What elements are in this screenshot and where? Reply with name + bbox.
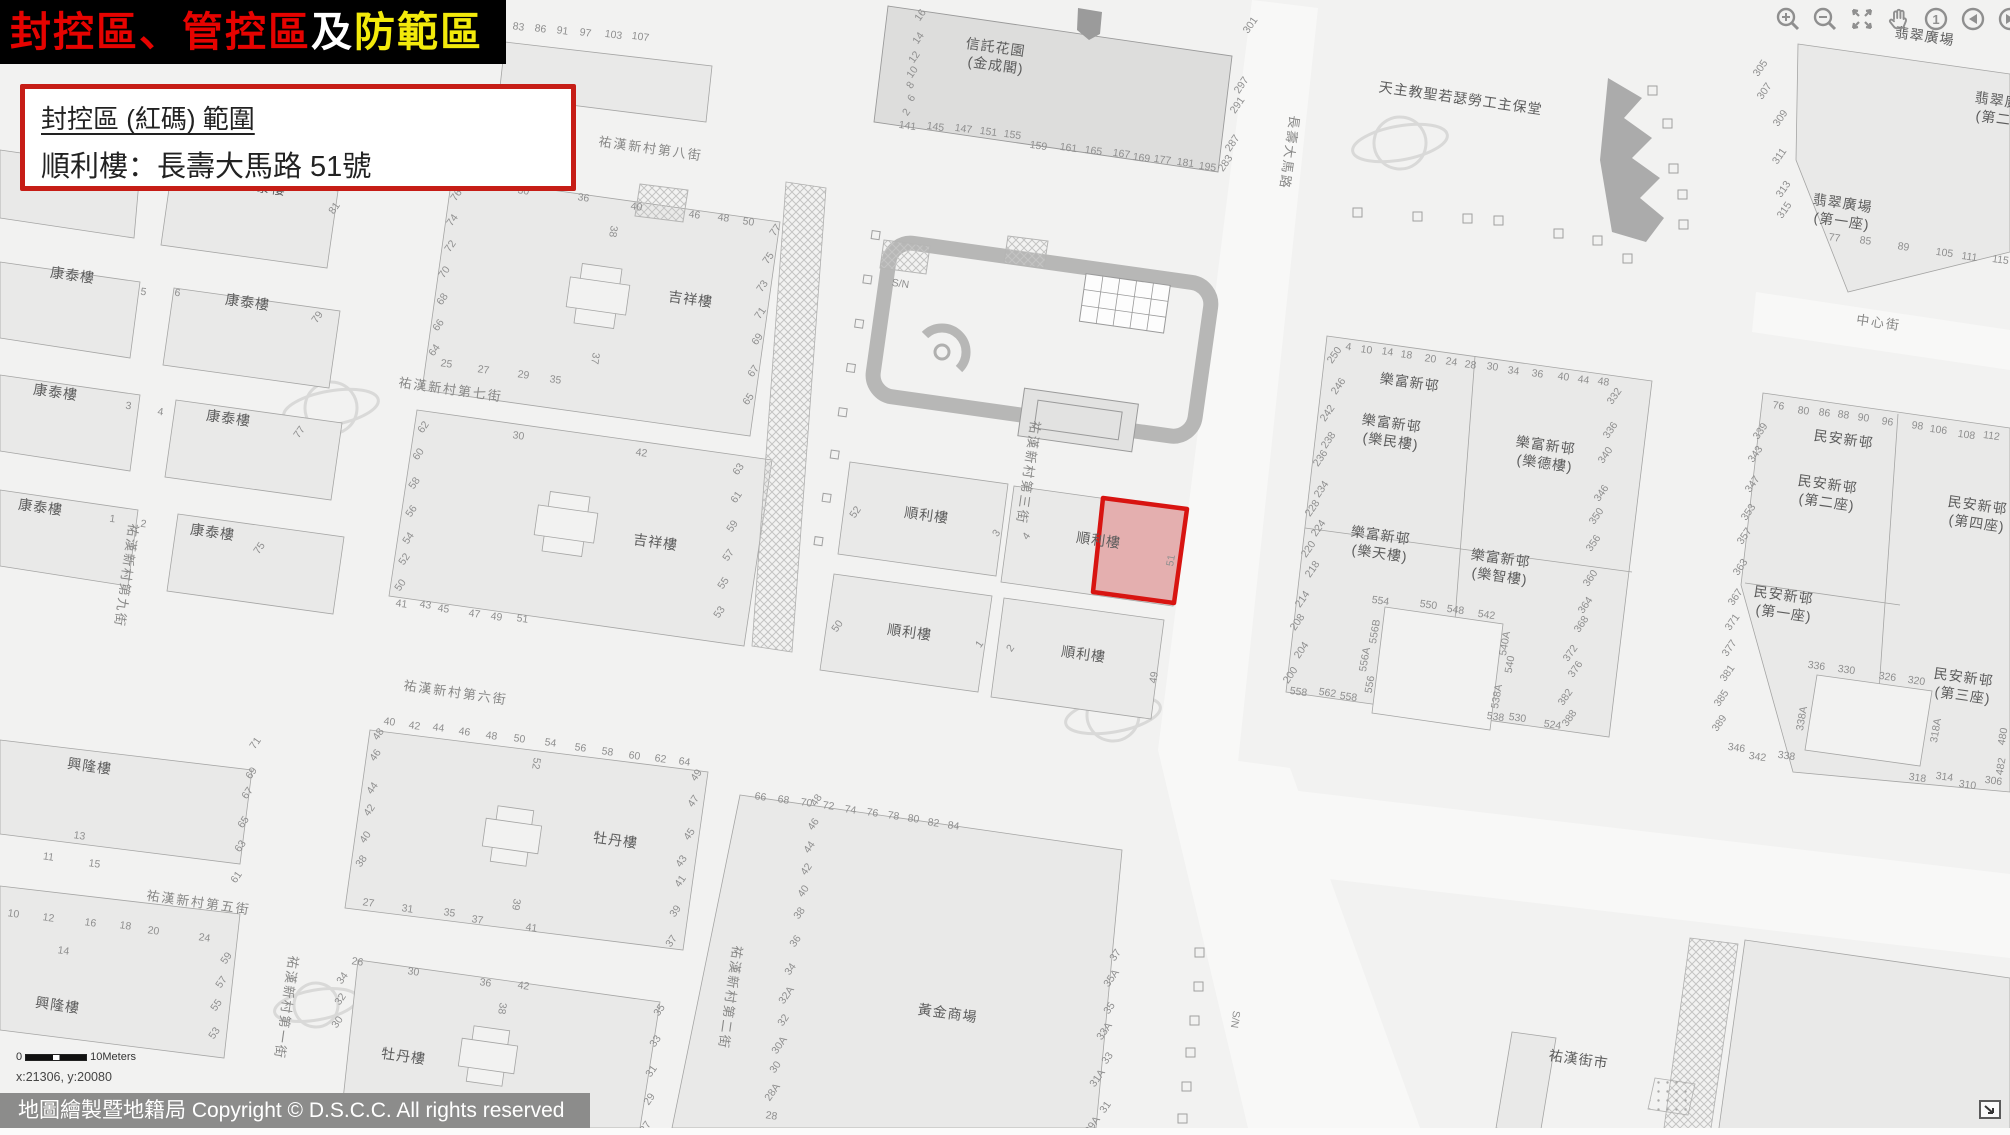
lot-number: 12 — [42, 911, 55, 925]
copyright-bar: 地圖繪製暨地籍局 Copyright © D.S.C.C. All rights… — [0, 1093, 590, 1128]
lot-number: 48 — [717, 211, 730, 225]
lot-number: 40 — [383, 715, 396, 729]
lot-number: 86 — [1818, 406, 1831, 420]
lot-number: 542 — [1477, 608, 1496, 622]
lot-number: 11 — [42, 850, 55, 863]
previous-view-button[interactable] — [1959, 5, 1987, 33]
lot-number: 49 — [490, 610, 503, 624]
title-segment-white: 及 — [311, 12, 354, 53]
lot-number: 161 — [1059, 141, 1078, 155]
lot-number: 310 — [1958, 778, 1977, 792]
lot-number: 338 — [1777, 749, 1796, 763]
lockdown-info-box: 封控區 (紅碼) 範圍 順利樓：長壽大馬路 51號 — [20, 84, 576, 191]
lot-number: 155 — [1003, 128, 1022, 142]
lockdown-scope-heading: 封控區 (紅碼) 範圍 — [41, 99, 555, 136]
lot-number: 43 — [419, 598, 432, 612]
lot-number: 15 — [88, 857, 101, 871]
lot-number: 58 — [601, 745, 614, 759]
lot-number: 42 — [408, 719, 421, 733]
lot-number: 558 — [1339, 690, 1358, 704]
scale-bar: 0 10Meters — [16, 1051, 136, 1063]
lot-number: 46 — [458, 725, 471, 739]
lot-number: 13 — [73, 829, 86, 843]
lot-number: 20 — [1424, 352, 1437, 366]
lot-number: 44 — [1577, 373, 1590, 387]
lot-number: 78 — [887, 809, 900, 823]
initial-view-button[interactable]: 1 — [1922, 5, 1950, 33]
lot-number: 167 — [1112, 147, 1131, 161]
lot-number: 35 — [549, 373, 562, 387]
lot-number: 48 — [485, 729, 498, 743]
next-view-icon — [1996, 5, 2010, 33]
lot-number: 91 — [556, 24, 569, 38]
lot-number: 90 — [1857, 411, 1870, 425]
zoom-in-icon — [1774, 5, 1802, 33]
zoom-in-button[interactable] — [1774, 5, 1802, 33]
lot-number: 41 — [395, 597, 408, 611]
lot-number: 16 — [84, 916, 97, 930]
scale-start: 0 — [16, 1051, 22, 1063]
lot-number: 111 — [1961, 250, 1979, 264]
lot-number: 10 — [7, 907, 20, 921]
map-application: 8386919710310778815679347712752628303638… — [0, 0, 2010, 1135]
zoom-out-button[interactable] — [1811, 5, 1839, 33]
lot-number: 50 — [742, 215, 755, 229]
lot-number: 524 — [1543, 718, 1562, 732]
lot-number: 48 — [1597, 375, 1610, 389]
lot-number: 107 — [631, 30, 650, 44]
lot-number: 38 — [606, 225, 620, 238]
lot-number: 46 — [688, 208, 701, 222]
lot-number: 64 — [678, 755, 691, 769]
lot-number: 80 — [1797, 404, 1810, 418]
lot-number: 31 — [401, 902, 414, 916]
lot-number: 26 — [351, 955, 364, 969]
lot-number: 30 — [1486, 360, 1499, 374]
lot-number: 14 — [57, 944, 70, 958]
lot-number: 346 — [1727, 741, 1746, 755]
lot-number: 76 — [1772, 399, 1785, 413]
lot-number: 145 — [926, 120, 945, 134]
lot-number: 76 — [866, 806, 879, 820]
lot-number: 105 — [1935, 246, 1954, 260]
lot-number: 40 — [630, 200, 643, 214]
lot-number: 30 — [407, 965, 420, 979]
lot-number: 74 — [844, 803, 857, 817]
lot-number: 169 — [1132, 151, 1151, 165]
svg-text:1: 1 — [1932, 12, 1939, 27]
lot-number: 27 — [362, 896, 375, 910]
lot-number: 86 — [534, 22, 547, 36]
lot-number: 45 — [437, 602, 450, 616]
pan-hand-icon — [1885, 5, 1913, 33]
lot-number: 84 — [947, 819, 960, 833]
lot-number: 108 — [1957, 428, 1976, 442]
lot-number: 82 — [927, 816, 940, 830]
lot-number: 550 — [1419, 598, 1438, 612]
lot-number: 530 — [1508, 711, 1527, 725]
lot-number: 51 — [1164, 554, 1178, 568]
lot-number: 80 — [907, 812, 920, 826]
lot-number: 18 — [119, 919, 132, 933]
lot-number: 195 — [1198, 160, 1217, 174]
lot-number: 27 — [477, 363, 490, 377]
lot-number: 336 — [1807, 659, 1826, 673]
initial-view-icon: 1 — [1922, 5, 1950, 33]
lot-number: 181 — [1176, 156, 1195, 170]
lot-number: 151 — [979, 125, 998, 139]
lot-number: 51 — [516, 612, 529, 626]
lot-number: 159 — [1029, 139, 1048, 153]
previous-view-icon — [1959, 5, 1987, 33]
lot-number: 147 — [954, 122, 973, 136]
pan-button[interactable] — [1885, 5, 1913, 33]
lot-number: S/N — [1228, 1010, 1242, 1029]
lot-number: 83 — [512, 20, 525, 34]
map-toolbar: 1 — [1774, 5, 2010, 33]
lot-number: 548 — [1446, 603, 1465, 617]
lot-number: 14 — [1381, 345, 1394, 359]
lot-number: 36 — [577, 191, 590, 205]
lot-number: 34 — [1507, 364, 1520, 378]
lot-number: 60 — [628, 749, 641, 763]
lot-number: 558 — [1289, 685, 1308, 699]
lot-number: 47 — [468, 607, 481, 621]
lot-number: S/N — [891, 277, 910, 291]
lot-number: 37 — [471, 913, 484, 927]
lot-number: 320 — [1907, 674, 1926, 688]
lot-number: 562 — [1318, 686, 1337, 700]
lot-number: 66 — [754, 790, 767, 804]
lot-number: 44 — [432, 721, 445, 735]
lot-number: 39 — [509, 898, 523, 911]
lot-number: 20 — [147, 924, 160, 938]
lot-number: 41 — [525, 921, 538, 935]
lot-number: 62 — [654, 752, 667, 766]
lot-number: 56 — [574, 741, 587, 755]
lot-number: 70 — [800, 796, 813, 810]
lot-number: 314 — [1935, 770, 1954, 784]
next-view-button[interactable] — [1996, 5, 2010, 33]
lot-number: 29 — [517, 368, 530, 382]
lockdown-zone-highlight — [1093, 498, 1187, 603]
title-segment-yellow: 防範區 — [354, 12, 483, 53]
lot-number: 141 — [898, 119, 917, 133]
bottom-strip — [0, 1128, 2010, 1135]
lot-number: 342 — [1748, 750, 1767, 764]
scale-label: 10Meters — [90, 1051, 136, 1063]
lot-number: 88 — [1837, 408, 1850, 422]
title-banner: 封控區、管控區及防範區 — [0, 0, 506, 64]
lot-number: 77 — [1828, 231, 1841, 245]
lot-number: 97 — [579, 26, 592, 40]
lot-number: 49 — [1147, 671, 1161, 685]
lot-number: 28 — [765, 1109, 778, 1123]
lot-number: 42 — [635, 446, 648, 460]
lot-number: 554 — [1371, 594, 1390, 608]
cursor-coordinates: x:21306, y:20080 — [16, 1070, 112, 1084]
lot-number: 36 — [479, 976, 492, 990]
lot-number: 52 — [529, 757, 543, 770]
corner-resize-button[interactable] — [1979, 1100, 2001, 1119]
lot-number: 18 — [1400, 348, 1413, 362]
lot-number: 37 — [588, 352, 602, 365]
title-segment-red: 封控區、管控區 — [10, 12, 311, 53]
lot-number: 40 — [1557, 370, 1570, 384]
lot-number: 38 — [495, 1002, 509, 1015]
lot-number: 98 — [1911, 419, 1924, 433]
diagonal-arrow-icon — [1983, 1104, 1997, 1116]
lot-number: 106 — [1929, 423, 1948, 437]
lot-number: 103 — [604, 28, 623, 42]
lot-number: 96 — [1881, 415, 1894, 429]
lot-number: 42 — [517, 979, 530, 993]
lot-number: 36 — [1531, 367, 1544, 381]
lot-number: 318 — [1908, 771, 1927, 785]
lot-number: 330 — [1837, 663, 1856, 677]
lot-number: 326 — [1878, 670, 1897, 684]
lot-number: 85 — [1859, 234, 1872, 248]
lockdown-address: 順利樓：長壽大馬路 51號 — [41, 143, 555, 185]
lot-number: 10 — [1360, 343, 1373, 357]
lot-number: 28 — [1464, 358, 1477, 372]
lot-number: 24 — [198, 931, 211, 945]
lot-number: 24 — [1445, 355, 1458, 369]
lot-number: 72 — [822, 799, 835, 813]
lot-number: 165 — [1084, 144, 1103, 158]
lot-number: 25 — [440, 357, 453, 371]
lot-number: 112 — [1982, 429, 2000, 443]
lot-number: 480 — [1996, 727, 2010, 746]
lot-number: 177 — [1153, 153, 1172, 167]
full-extent-icon — [1848, 5, 1876, 33]
lot-number: 35 — [443, 906, 456, 920]
lot-number: 68 — [777, 793, 790, 807]
lot-number: 54 — [544, 736, 557, 750]
lot-number: 538 — [1486, 710, 1505, 724]
scale-bar-graphic — [25, 1054, 87, 1061]
lot-number: 89 — [1897, 240, 1910, 254]
lot-number: 30 — [512, 429, 525, 443]
lot-number: 115 — [1991, 253, 2009, 267]
lot-number: 50 — [513, 732, 526, 746]
full-extent-button[interactable] — [1848, 5, 1876, 33]
zoom-out-icon — [1811, 5, 1839, 33]
